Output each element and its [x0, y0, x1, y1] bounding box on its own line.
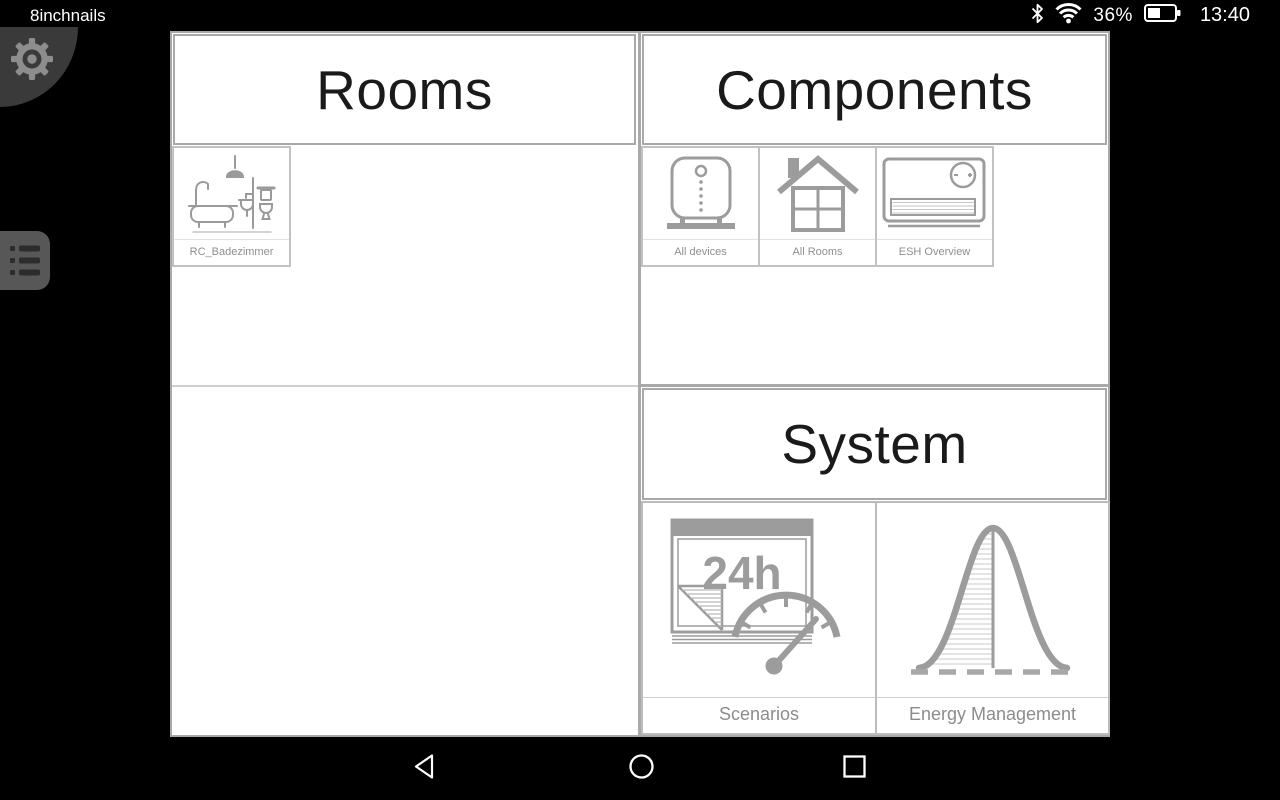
tile-all-devices[interactable]: All devices [641, 146, 760, 267]
home-icon [628, 753, 655, 785]
tile-energy-management[interactable]: Energy Management [875, 501, 1110, 735]
bathroom-icon [174, 148, 289, 239]
calendar-gauge-icon: 24h [643, 503, 875, 697]
rooms-tile-row: RC_Badezimmer [172, 146, 291, 267]
status-bar: 8inchnails 36% 13:4 [0, 0, 1280, 31]
status-time: 13:40 [1200, 4, 1250, 27]
back-icon [412, 753, 436, 785]
tile-all-rooms[interactable]: All Rooms [758, 146, 877, 267]
main-content: Rooms Components System [170, 31, 1110, 737]
scenarios-icon-text: 24h [702, 547, 781, 599]
device-icon [643, 148, 758, 239]
screen: 8inchnails 36% 13:4 [0, 0, 1280, 800]
bell-curve-icon [877, 503, 1108, 697]
heater-icon [877, 148, 992, 239]
battery-icon [1144, 3, 1181, 28]
system-header: System [642, 388, 1107, 500]
wifi-icon [1055, 3, 1082, 29]
recents-button[interactable] [814, 737, 894, 800]
settings-button[interactable] [0, 27, 78, 107]
status-cluster: 36% 13:40 [1031, 0, 1250, 31]
tile-label: All devices [643, 239, 758, 265]
tile-label: All Rooms [760, 239, 875, 265]
house-icon [760, 148, 875, 239]
tile-label: Energy Management [877, 697, 1108, 733]
bluetooth-icon [1031, 3, 1044, 29]
horizontal-divider-left [172, 385, 638, 387]
rooms-header: Rooms [173, 34, 636, 145]
tile-label: ESH Overview [877, 239, 992, 265]
back-button[interactable] [384, 737, 464, 800]
components-tile-row: All devices All Rooms [641, 146, 994, 267]
recents-icon [842, 754, 867, 784]
horizontal-divider-right [638, 384, 1108, 387]
menu-button[interactable] [0, 231, 50, 290]
tile-esh-overview[interactable]: ESH Overview [875, 146, 994, 267]
components-title: Components [716, 58, 1033, 122]
tile-label: RC_Badezimmer [174, 239, 289, 265]
tile-rc-badezimmer[interactable]: RC_Badezimmer [172, 146, 291, 267]
tile-scenarios[interactable]: 24h [641, 501, 877, 735]
components-header: Components [642, 34, 1107, 145]
tile-label: Scenarios [643, 697, 875, 733]
home-button[interactable] [601, 737, 681, 800]
android-nav-bar [0, 737, 1280, 800]
battery-percent: 36% [1093, 5, 1133, 27]
rooms-title: Rooms [316, 58, 493, 122]
system-title: System [781, 412, 967, 476]
